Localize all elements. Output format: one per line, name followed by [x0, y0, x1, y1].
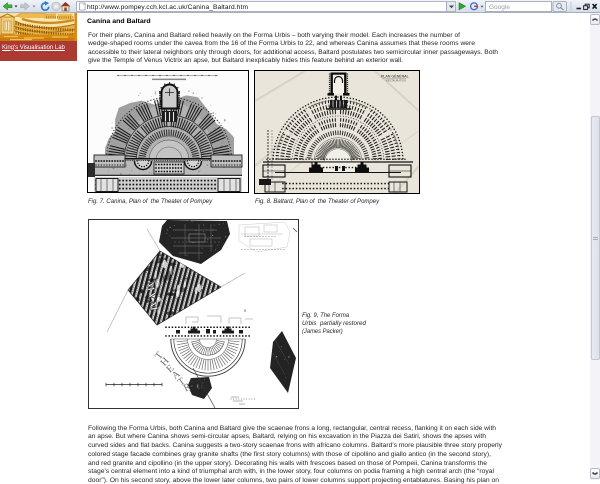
svg-text:RESTAURATION: RESTAURATION: [386, 79, 406, 83]
svg-text:Google: Google: [489, 4, 510, 11]
svg-text:PLAN GÉNÉRAL: PLAN GÉNÉRAL: [381, 74, 409, 79]
svg-text:http://www.pompey.cch.kcl.ac.u: http://www.pompey.cch.kcl.ac.uk/Canina_B…: [87, 4, 249, 11]
